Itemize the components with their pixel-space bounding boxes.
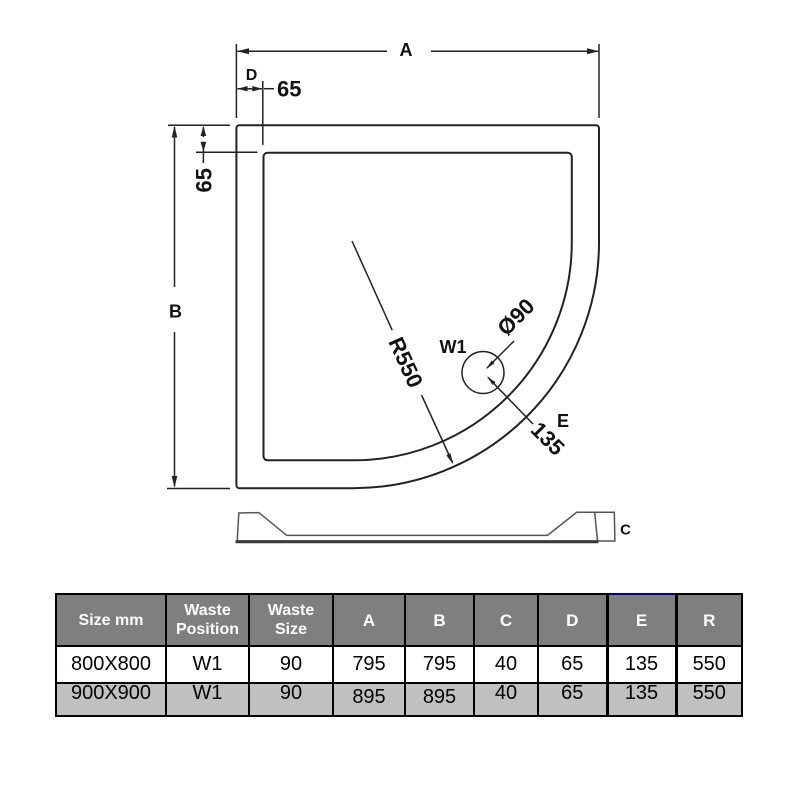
svg-text:65: 65	[277, 77, 301, 102]
svg-text:D: D	[246, 67, 258, 84]
svg-text:E: E	[557, 411, 569, 431]
svg-text:B: B	[169, 302, 182, 322]
svg-text:W1: W1	[440, 337, 467, 357]
svg-text:65: 65	[192, 168, 217, 192]
svg-text:Ø90: Ø90	[492, 293, 539, 340]
svg-text:C: C	[620, 522, 631, 539]
svg-text:A: A	[400, 40, 413, 60]
svg-text:R550: R550	[383, 333, 428, 391]
